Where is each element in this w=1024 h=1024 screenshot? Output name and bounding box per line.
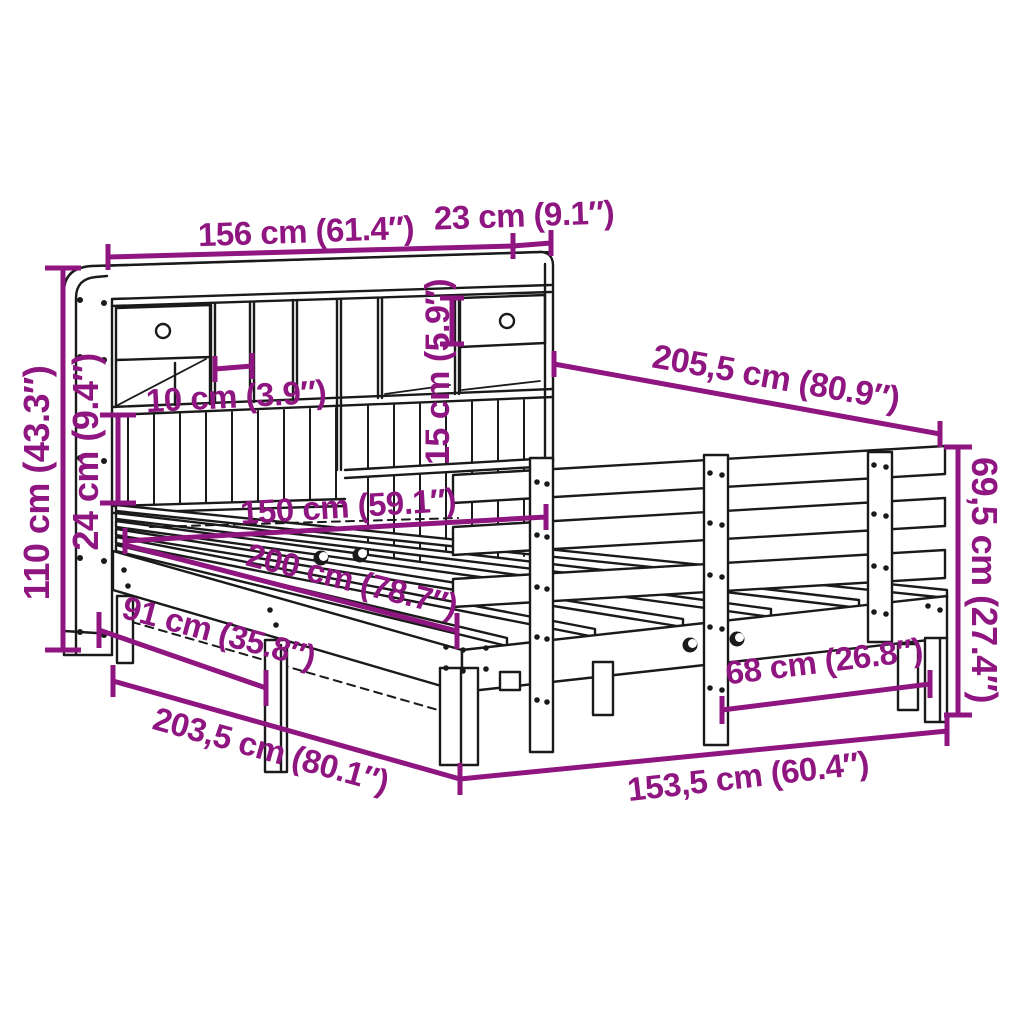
dimension-diagram: 156 cm (61.4″) 23 cm (9.1″) 110 cm (43.3… xyxy=(0,0,1024,1024)
right-drawer-knob xyxy=(500,314,514,328)
near-corner-leg xyxy=(440,668,478,765)
dim-rail-height-label: 69,5 cm (27.4″) xyxy=(966,457,1002,703)
dim-shelf-section-label: 24 cm (9.4″) xyxy=(68,353,104,550)
bed-line-drawing xyxy=(0,0,1024,1024)
dim-headboard-width-label: 156 cm (61.4″) xyxy=(197,211,414,252)
right-drawer xyxy=(460,295,545,392)
dim-drawer-height-label: 15 cm (5.9″) xyxy=(421,279,455,465)
dim-cubby-width-label: 10 cm (3.9″) xyxy=(145,375,327,417)
left-drawer-knob xyxy=(156,324,170,338)
rail-post-1 xyxy=(530,458,553,752)
dim-headboard-depth-label: 23 cm (9.1″) xyxy=(433,195,614,234)
center-leg-stub xyxy=(500,672,520,690)
foot-middle-leg xyxy=(593,662,613,715)
dim-headboard-height-label: 110 cm (43.3″) xyxy=(19,366,55,600)
